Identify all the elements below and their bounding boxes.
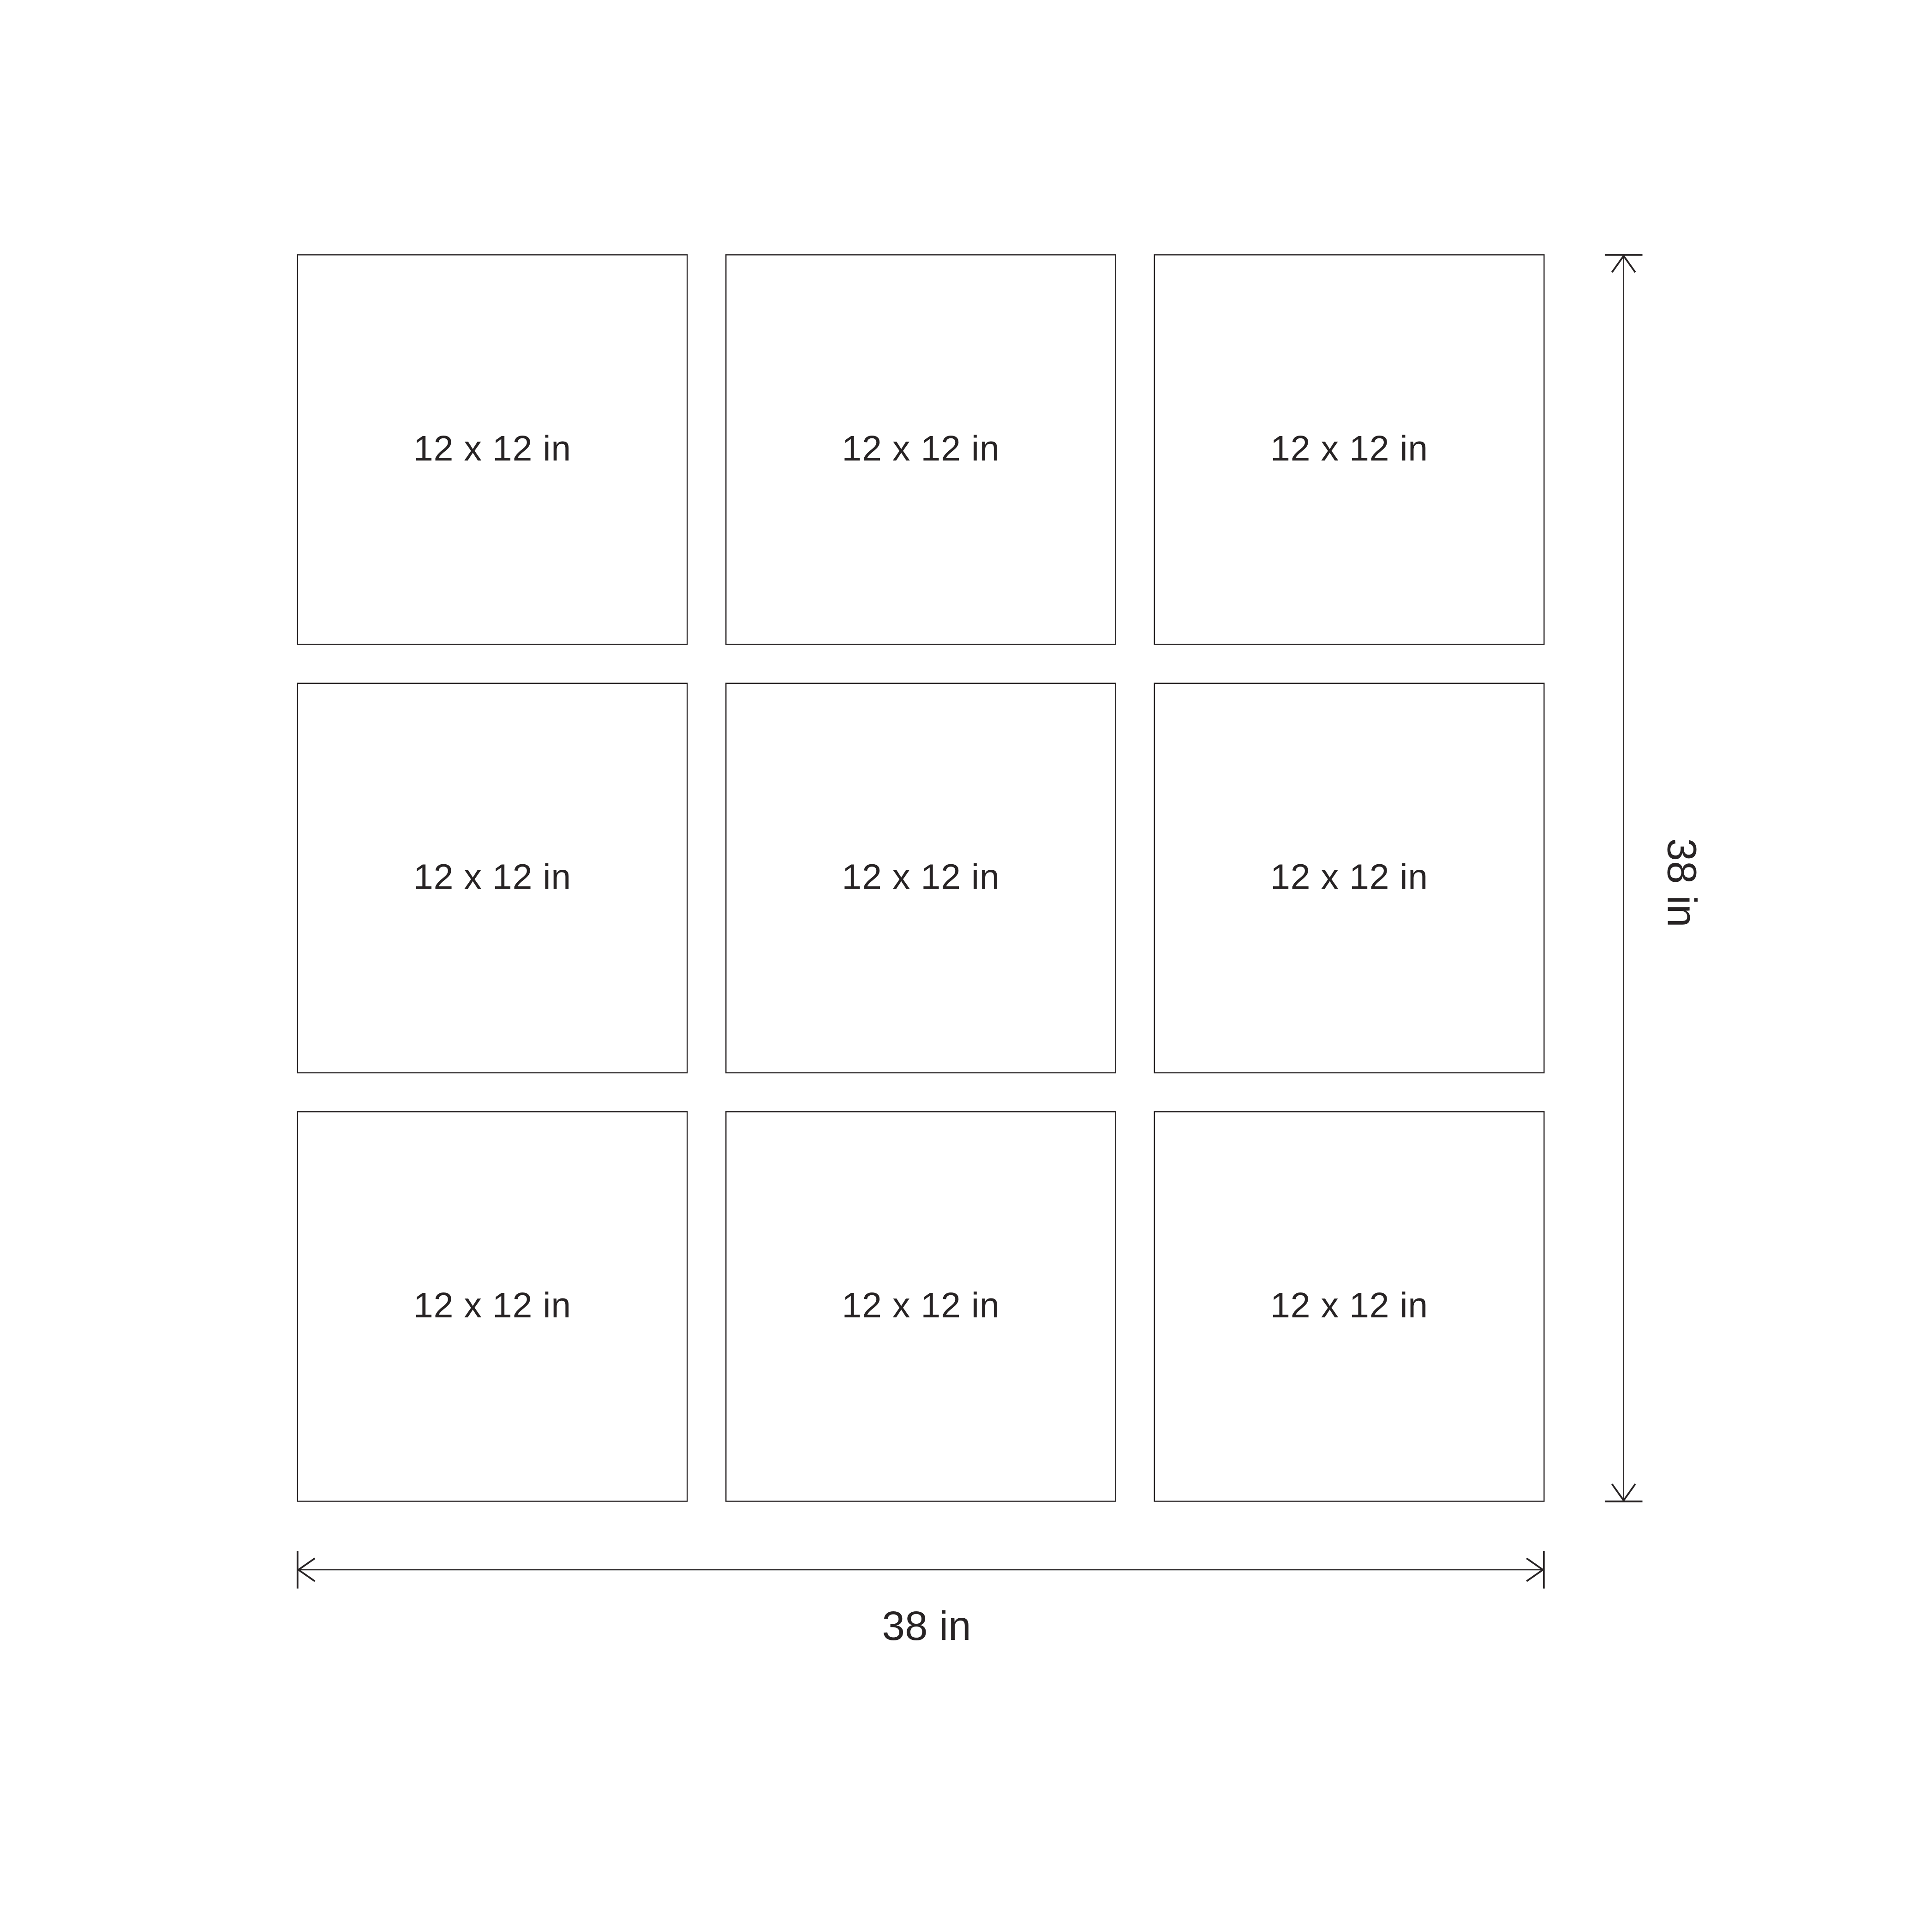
- svg-text:12 x 12 in: 12 x 12 in: [1270, 1286, 1428, 1325]
- svg-text:12 x 12 in: 12 x 12 in: [413, 1286, 571, 1325]
- svg-text:12 x 12 in: 12 x 12 in: [842, 1286, 1000, 1325]
- svg-text:12 x 12 in: 12 x 12 in: [1270, 857, 1428, 897]
- svg-text:12 x 12 in: 12 x 12 in: [1270, 429, 1428, 468]
- svg-text:12 x 12 in: 12 x 12 in: [413, 857, 571, 897]
- svg-text:38 in: 38 in: [882, 1603, 971, 1649]
- svg-text:12 x 12 in: 12 x 12 in: [413, 429, 571, 468]
- svg-text:12 x 12 in: 12 x 12 in: [842, 857, 1000, 897]
- svg-text:38 in: 38 in: [1659, 838, 1705, 927]
- svg-text:12 x 12 in: 12 x 12 in: [842, 429, 1000, 468]
